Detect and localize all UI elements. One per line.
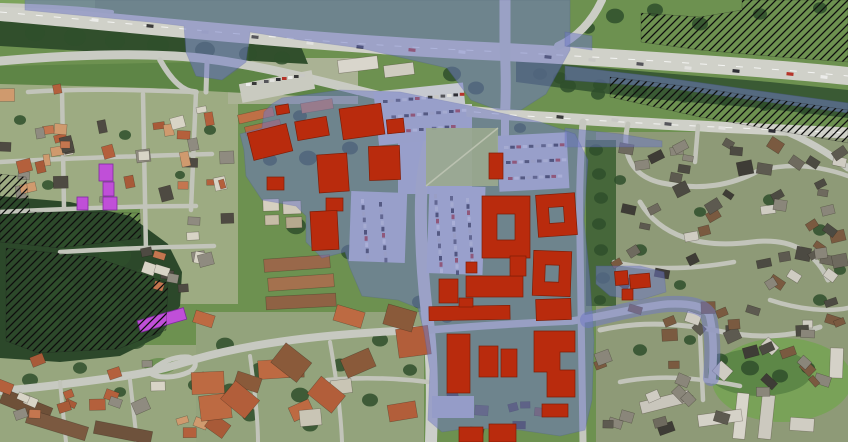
road: [695, 126, 698, 162]
parked-car: [453, 93, 458, 96]
house-roof: [187, 138, 199, 152]
house-roof: [221, 213, 234, 224]
tree-canopy: [119, 130, 131, 140]
parked-car: [460, 93, 465, 96]
tree-canopy: [633, 344, 647, 355]
highlighted-building: [542, 404, 568, 417]
highlighted-building: [447, 334, 470, 393]
tree-canopy: [594, 244, 608, 255]
tree-canopy: [560, 79, 576, 92]
highlighted-building: [501, 349, 517, 377]
aerial-map-viewport: [0, 0, 848, 442]
parked-car: [252, 82, 257, 85]
house-roof: [53, 176, 68, 189]
house-roof: [89, 399, 105, 411]
tree-canopy: [591, 88, 605, 99]
highlighted-building: [459, 298, 473, 307]
highlighted-building: [622, 289, 633, 300]
highlighted-building: [439, 279, 458, 303]
house-roof: [167, 273, 179, 284]
house-roof: [191, 371, 225, 394]
tree-canopy: [274, 51, 290, 64]
highlighted-building: [368, 145, 400, 180]
house-roof: [52, 84, 62, 95]
tree-canopy: [105, 33, 125, 49]
house-roof: [831, 253, 848, 269]
house-roof: [728, 319, 740, 330]
building-roof: [265, 215, 279, 225]
special-building: [103, 182, 114, 196]
parked-car: [246, 83, 251, 86]
tree-canopy: [403, 364, 417, 375]
highlighted-building: [429, 305, 510, 320]
tree-canopy: [64, 28, 86, 46]
house-roof: [219, 151, 234, 164]
tree-canopy: [594, 295, 606, 305]
highlighted-building: [339, 103, 385, 140]
highlighted-building: [489, 424, 516, 442]
house-roof: [183, 428, 196, 438]
house-roof: [54, 124, 67, 135]
highlighted-building: [614, 270, 628, 285]
tree-canopy: [175, 171, 185, 179]
tree-canopy: [614, 175, 626, 185]
tree-canopy: [594, 192, 608, 203]
building-roof: [790, 417, 815, 432]
house-roof: [814, 247, 828, 259]
house-roof: [635, 159, 650, 170]
highlighted-building: [466, 276, 523, 297]
tree-canopy: [362, 393, 378, 406]
parked-car: [264, 80, 269, 83]
parked-car: [447, 94, 452, 97]
highlighted-building: [310, 210, 339, 250]
building-roof: [286, 217, 302, 229]
house-roof: [730, 146, 743, 156]
road: [700, 332, 703, 400]
tree-canopy: [674, 280, 686, 290]
special-building: [103, 197, 117, 210]
highlighted-building: [386, 118, 404, 134]
house-roof: [177, 130, 190, 139]
tree-canopy: [741, 361, 759, 376]
highlighted-building: [466, 262, 477, 273]
highlighted-building: [510, 256, 526, 276]
tree-canopy: [592, 218, 606, 229]
house-roof: [35, 127, 45, 139]
layer-post-grounds: [426, 128, 498, 186]
highlighted-building: [479, 346, 498, 377]
highlighted-building: [489, 153, 503, 179]
house-roof: [778, 251, 791, 262]
house-roof: [662, 329, 678, 342]
house-roof: [773, 199, 788, 212]
house-roof: [299, 408, 322, 426]
house-roof: [29, 409, 41, 418]
house-roof: [188, 217, 201, 226]
tree-canopy: [684, 335, 696, 345]
house-roof: [187, 232, 200, 241]
tree-canopy: [606, 9, 624, 24]
house-roof: [678, 164, 691, 174]
building-roof: [829, 348, 843, 378]
house-roof: [736, 160, 754, 177]
house-roof: [817, 189, 828, 197]
parked-car: [270, 79, 275, 82]
highlighted-building: [629, 273, 650, 289]
tree-canopy: [694, 207, 706, 217]
parked-car: [276, 78, 281, 81]
parked-car: [434, 95, 439, 98]
house-roof: [603, 420, 614, 428]
house-roof: [178, 284, 189, 293]
tree-canopy: [204, 125, 216, 135]
house-roof: [0, 142, 11, 152]
house-roof: [138, 151, 149, 161]
special-building: [77, 197, 88, 210]
house-roof: [140, 247, 152, 257]
tree-canopy: [25, 25, 45, 41]
house-roof: [124, 175, 136, 189]
house-roof: [142, 360, 152, 367]
highlighted-building: [326, 198, 343, 211]
house-roof: [151, 381, 166, 391]
parked-car: [282, 77, 287, 80]
house-roof: [178, 181, 188, 189]
house-roof: [669, 172, 682, 183]
parked-car: [300, 74, 305, 77]
parked-car: [258, 81, 263, 84]
tree-canopy: [592, 168, 606, 179]
highlighted-building: [459, 427, 483, 442]
house-roof: [0, 89, 15, 102]
house-roof: [756, 387, 770, 396]
highlighted-building: [275, 104, 289, 115]
tree-canopy: [14, 115, 26, 125]
highlighted-building: [267, 177, 284, 190]
tree-canopy: [42, 180, 54, 190]
house-roof: [756, 162, 773, 175]
aerial-map-image: [0, 0, 848, 442]
tree-canopy: [73, 362, 87, 373]
parked-car: [294, 75, 299, 78]
house-roof: [801, 329, 815, 338]
special-building: [99, 164, 113, 181]
house-roof: [668, 361, 679, 369]
house-roof: [60, 141, 70, 148]
road: [143, 94, 146, 252]
highlighted-building: [536, 298, 572, 320]
parked-car: [288, 76, 293, 79]
highlighted-building: [317, 153, 350, 193]
parked-car: [441, 95, 446, 98]
